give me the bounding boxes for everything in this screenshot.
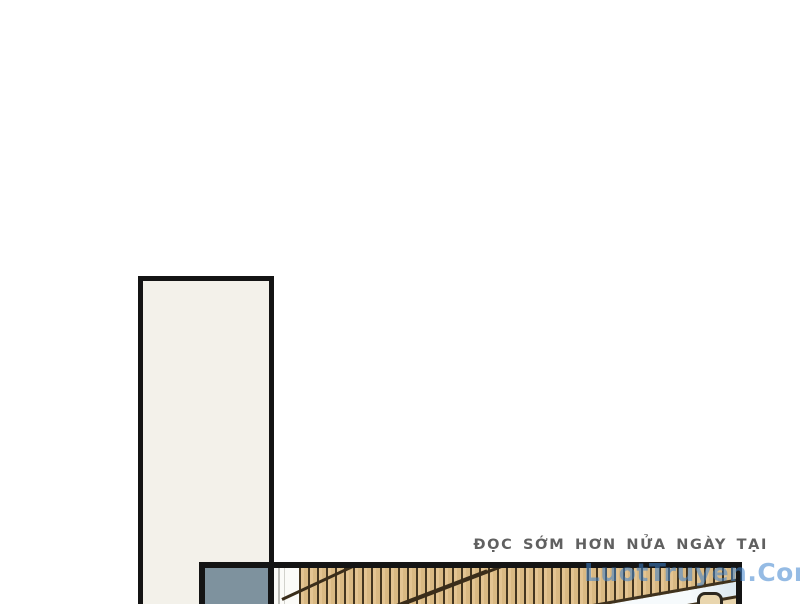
wall-edge-line (278, 568, 280, 604)
blue-gray-panel (199, 562, 274, 604)
tall-blank-panel (138, 276, 274, 604)
watermark-text: LuotTruyen.Com (584, 558, 800, 587)
comic-page: ĐỌC SỚM HƠN NỬA NGÀY TẠI LuotTruyen.Com (0, 0, 800, 604)
chair-back-shape (697, 592, 723, 604)
promo-text: ĐỌC SỚM HƠN NỬA NGÀY TẠI (473, 537, 768, 553)
